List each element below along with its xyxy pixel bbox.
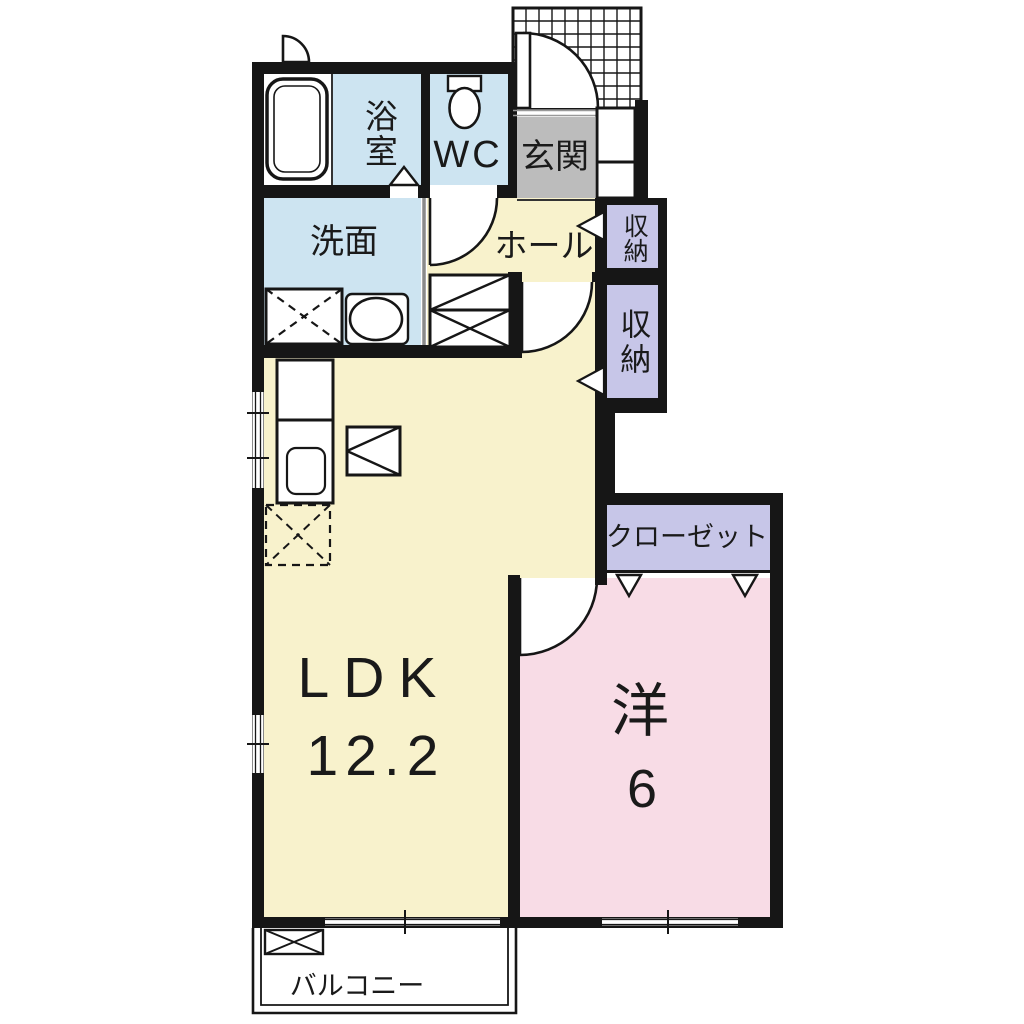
storage-upper-label: 収納 [616,206,652,270]
washing-machine-icon [266,289,342,344]
washroom-label: 洗面 [282,224,406,262]
hall-label: ホール [482,227,606,265]
floor-plan-drawing [0,0,1024,1024]
kitchen-counter-icon [277,360,333,503]
balcony-label: バルコニー [275,970,439,1002]
toilet-label: WC [426,134,510,178]
stove-icon [347,427,400,475]
ldk-size-label: 12.2 [258,724,494,790]
sink-icon [346,294,408,344]
entrance-threshold-lines [513,111,596,116]
hall-shelf-icon [430,275,510,347]
western-room-size-label: 6 [602,758,682,820]
floor-plan: 浴室 WC 玄関 洗面 ホール 収納 収納 クローゼット LDK 12.2 洋 … [0,0,1024,1024]
vent-flap-icon [283,36,309,62]
ldk-label: LDK [262,646,486,712]
storage-lower-label: 収納 [612,296,652,390]
bathroom-label: 浴室 [356,84,400,184]
toilet-icon [448,76,481,128]
balcony-washer-space-icon [265,930,323,954]
entrance-label: 玄関 [513,138,597,178]
western-room-label: 洋 [602,678,678,746]
bathtub-icon [267,79,327,179]
shoe-cabinet-icon [597,108,635,198]
closet-label: クローゼット [604,520,770,554]
